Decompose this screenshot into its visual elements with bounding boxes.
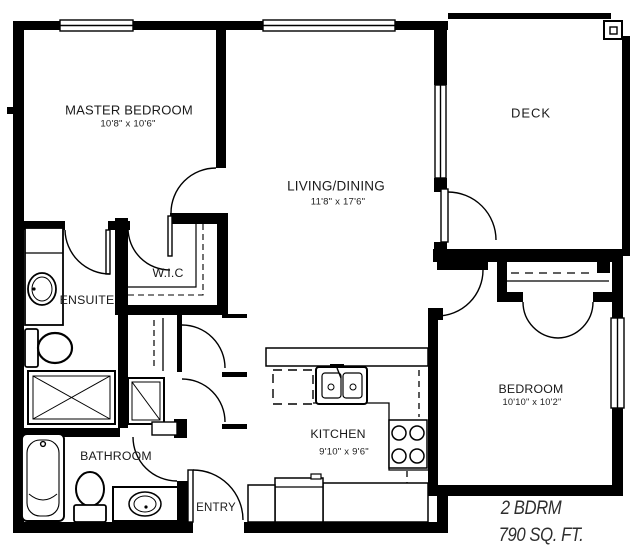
bedroom-door-swing <box>437 270 483 316</box>
closet-front-right-stub <box>593 292 619 302</box>
kitchen-sink-icon <box>316 364 367 404</box>
ensuite-door-leaf <box>106 230 110 274</box>
bedroom-top-wall-segment <box>437 262 488 270</box>
refrigerator-icon <box>275 474 323 522</box>
ensuite-vanity-sink-icon <box>25 228 63 325</box>
deck-post-icon <box>604 21 622 39</box>
exterior-wall-bottom-mid <box>244 522 448 533</box>
bedroom-bottom-wall <box>437 485 622 496</box>
master-door-swing <box>171 168 216 213</box>
room-label-wic: W.I.C <box>152 266 183 280</box>
room-label-living-dining: LIVING/DINING <box>287 179 385 194</box>
hall-opening-jamb-bottom <box>222 424 247 429</box>
unit-type-label: 2 BDRM <box>501 498 562 520</box>
bathroom-fixtures <box>22 434 178 522</box>
shower-icon <box>28 371 115 424</box>
entry-cabinet <box>248 485 275 522</box>
ensuite-door-swing <box>65 230 110 274</box>
bathroom-vanity-sink-icon <box>113 487 178 521</box>
living-right-wall-upper <box>434 30 447 85</box>
deck-bottom-wall <box>433 249 623 262</box>
room-label-bathroom: BATHROOM <box>80 449 152 463</box>
floor-plan-drawing <box>0 0 641 550</box>
exterior-wall-bottom-left <box>13 522 193 533</box>
hall-door-swing-upper <box>182 325 225 368</box>
room-dims-living-dining: 11'8" x 17'6" <box>311 197 366 208</box>
wic-door-swing <box>128 228 170 270</box>
bedroom-left-wall <box>428 308 438 496</box>
closet-front-left-stub <box>497 292 523 302</box>
wic-top-wall <box>170 213 217 224</box>
room-label-deck: DECK <box>511 106 551 121</box>
wic-rod-line <box>128 224 203 295</box>
closet-door-swing-left <box>523 302 558 338</box>
hall-door-swing-lower <box>182 379 225 422</box>
bathroom-door-pocket <box>152 422 177 435</box>
unit-area-label: 790 SQ. FT. <box>499 525 584 547</box>
hall-opening-jamb-top <box>222 314 247 318</box>
wic-left-wall <box>115 218 128 315</box>
bathroom-toilet-icon <box>74 472 106 522</box>
ensuite-toilet-icon <box>25 329 72 367</box>
room-dims-kitchen: 9'10" x 9'6" <box>319 447 369 458</box>
deck-top-rail <box>448 13 611 19</box>
counter-bar <box>266 348 428 366</box>
deck-right-wall <box>622 36 630 256</box>
wic-shelving <box>128 224 203 295</box>
corner-cabinet <box>273 370 313 404</box>
deck-door-swing <box>448 192 496 240</box>
room-dims-bedroom: 10'10" x 10'2" <box>503 397 562 407</box>
closet-door-swing-right <box>558 302 593 338</box>
room-dims-master-bedroom: 10'8" x 10'6" <box>100 119 155 130</box>
room-label-kitchen: KITCHEN <box>310 427 365 441</box>
room-label-ensuite: ENSUITE <box>60 293 115 307</box>
bathtub-icon <box>22 434 64 521</box>
hall-opening-jamb-mid <box>222 372 247 377</box>
master-right-wall <box>216 30 226 168</box>
wic-right-wall <box>217 213 228 315</box>
room-label-entry: ENTRY <box>196 502 236 514</box>
linen-closet-icon <box>128 378 164 424</box>
ensuite-fixtures <box>25 228 164 424</box>
bedroom-bottom-connector <box>437 485 448 533</box>
wic-bottom-wall <box>115 305 228 315</box>
deck-door-leaf <box>441 189 448 242</box>
stove-icon <box>389 420 427 468</box>
bedroom-closet <box>507 273 609 338</box>
room-label-bedroom: BEDROOM <box>499 382 564 396</box>
floor-plan: MASTER BEDROOM 10'8" x 10'6" LIVING/DINI… <box>0 0 641 550</box>
room-label-master-bedroom: MASTER BEDROOM <box>65 103 193 118</box>
hall-left-wall <box>118 315 128 428</box>
closet-right-block <box>597 262 610 273</box>
hall-jamb-wall <box>177 315 182 372</box>
entry-door-leaf <box>188 470 193 522</box>
wic-door-leaf <box>168 216 172 256</box>
base-cabinet <box>323 483 428 522</box>
dimension-tick <box>7 107 13 114</box>
